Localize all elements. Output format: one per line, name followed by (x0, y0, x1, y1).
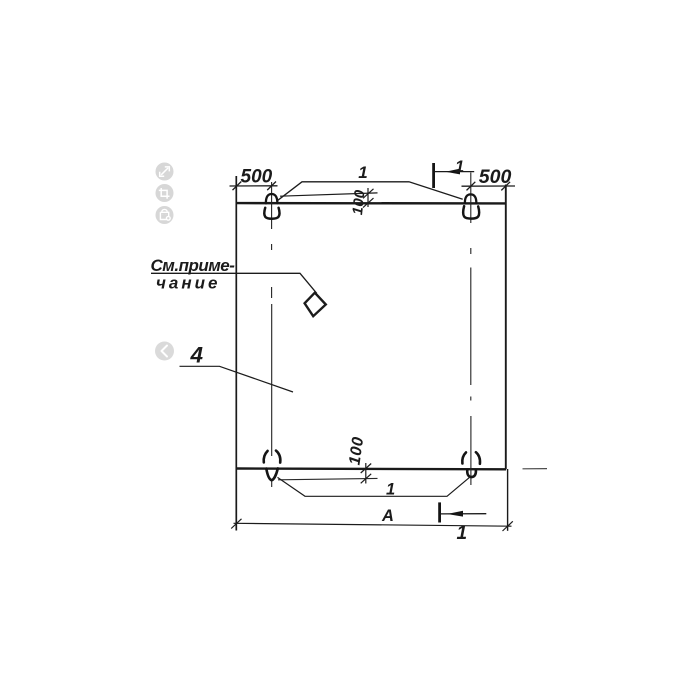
svg-text:1: 1 (358, 163, 367, 182)
svg-text:См.приме-: См.приме- (151, 256, 236, 275)
svg-text:1: 1 (386, 481, 395, 499)
svg-text:4: 4 (190, 342, 204, 367)
svg-text:А: А (381, 507, 394, 525)
svg-text:500: 500 (241, 167, 273, 188)
svg-text:чание: чание (156, 274, 220, 293)
svg-text:1: 1 (455, 158, 464, 176)
svg-text:100: 100 (350, 189, 369, 216)
svg-text:1: 1 (457, 523, 468, 544)
svg-text:500: 500 (479, 166, 512, 188)
